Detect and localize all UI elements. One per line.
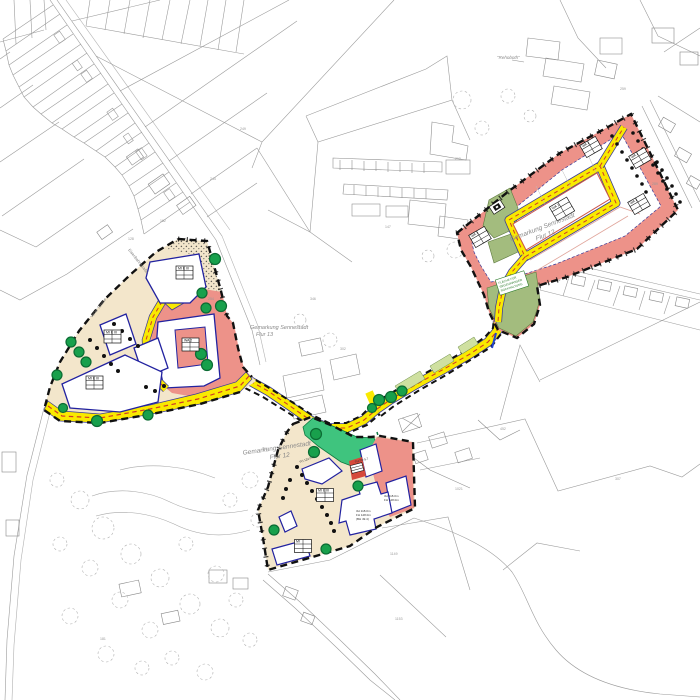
svg-text:128: 128 [128, 237, 134, 241]
svg-text:302: 302 [340, 347, 346, 351]
svg-text:259: 259 [620, 87, 626, 91]
svg-text:307: 307 [615, 477, 621, 481]
svg-text:"Rehoboth": "Rehoboth" [497, 55, 520, 60]
svg-text:162: 162 [160, 219, 166, 223]
svg-text:WA 2: WA 2 [184, 339, 192, 343]
svg-text:MI E III: MI E III [88, 377, 99, 381]
svg-text:Gemarkung Sennestadt: Gemarkung Sennestadt [250, 325, 309, 331]
svg-text:289: 289 [652, 182, 658, 186]
svg-text:249: 249 [240, 127, 246, 131]
svg-text:346: 346 [310, 297, 316, 301]
svg-text:(BH 49.4): (BH 49.4) [356, 517, 369, 521]
svg-text:MI E III: MI E III [318, 489, 329, 493]
svg-text:Flur 13: Flur 13 [256, 332, 274, 338]
svg-text:1149: 1149 [390, 552, 398, 556]
svg-text:FH 128.0m: FH 128.0m [384, 498, 399, 502]
svg-text:1021: 1021 [455, 487, 463, 491]
svg-text:452: 452 [500, 427, 506, 431]
svg-text:212: 212 [455, 157, 461, 161]
svg-text:244: 244 [210, 177, 216, 181]
svg-text:181: 181 [100, 637, 106, 641]
svg-text:MI E III: MI E III [106, 331, 117, 335]
svg-text:MI: MI [296, 540, 300, 544]
svg-text:MI E III: MI E III [178, 267, 189, 271]
svg-text:254: 254 [208, 297, 214, 301]
svg-text:306: 306 [262, 447, 268, 451]
svg-text:1153: 1153 [395, 617, 403, 621]
svg-text:147: 147 [385, 225, 391, 229]
